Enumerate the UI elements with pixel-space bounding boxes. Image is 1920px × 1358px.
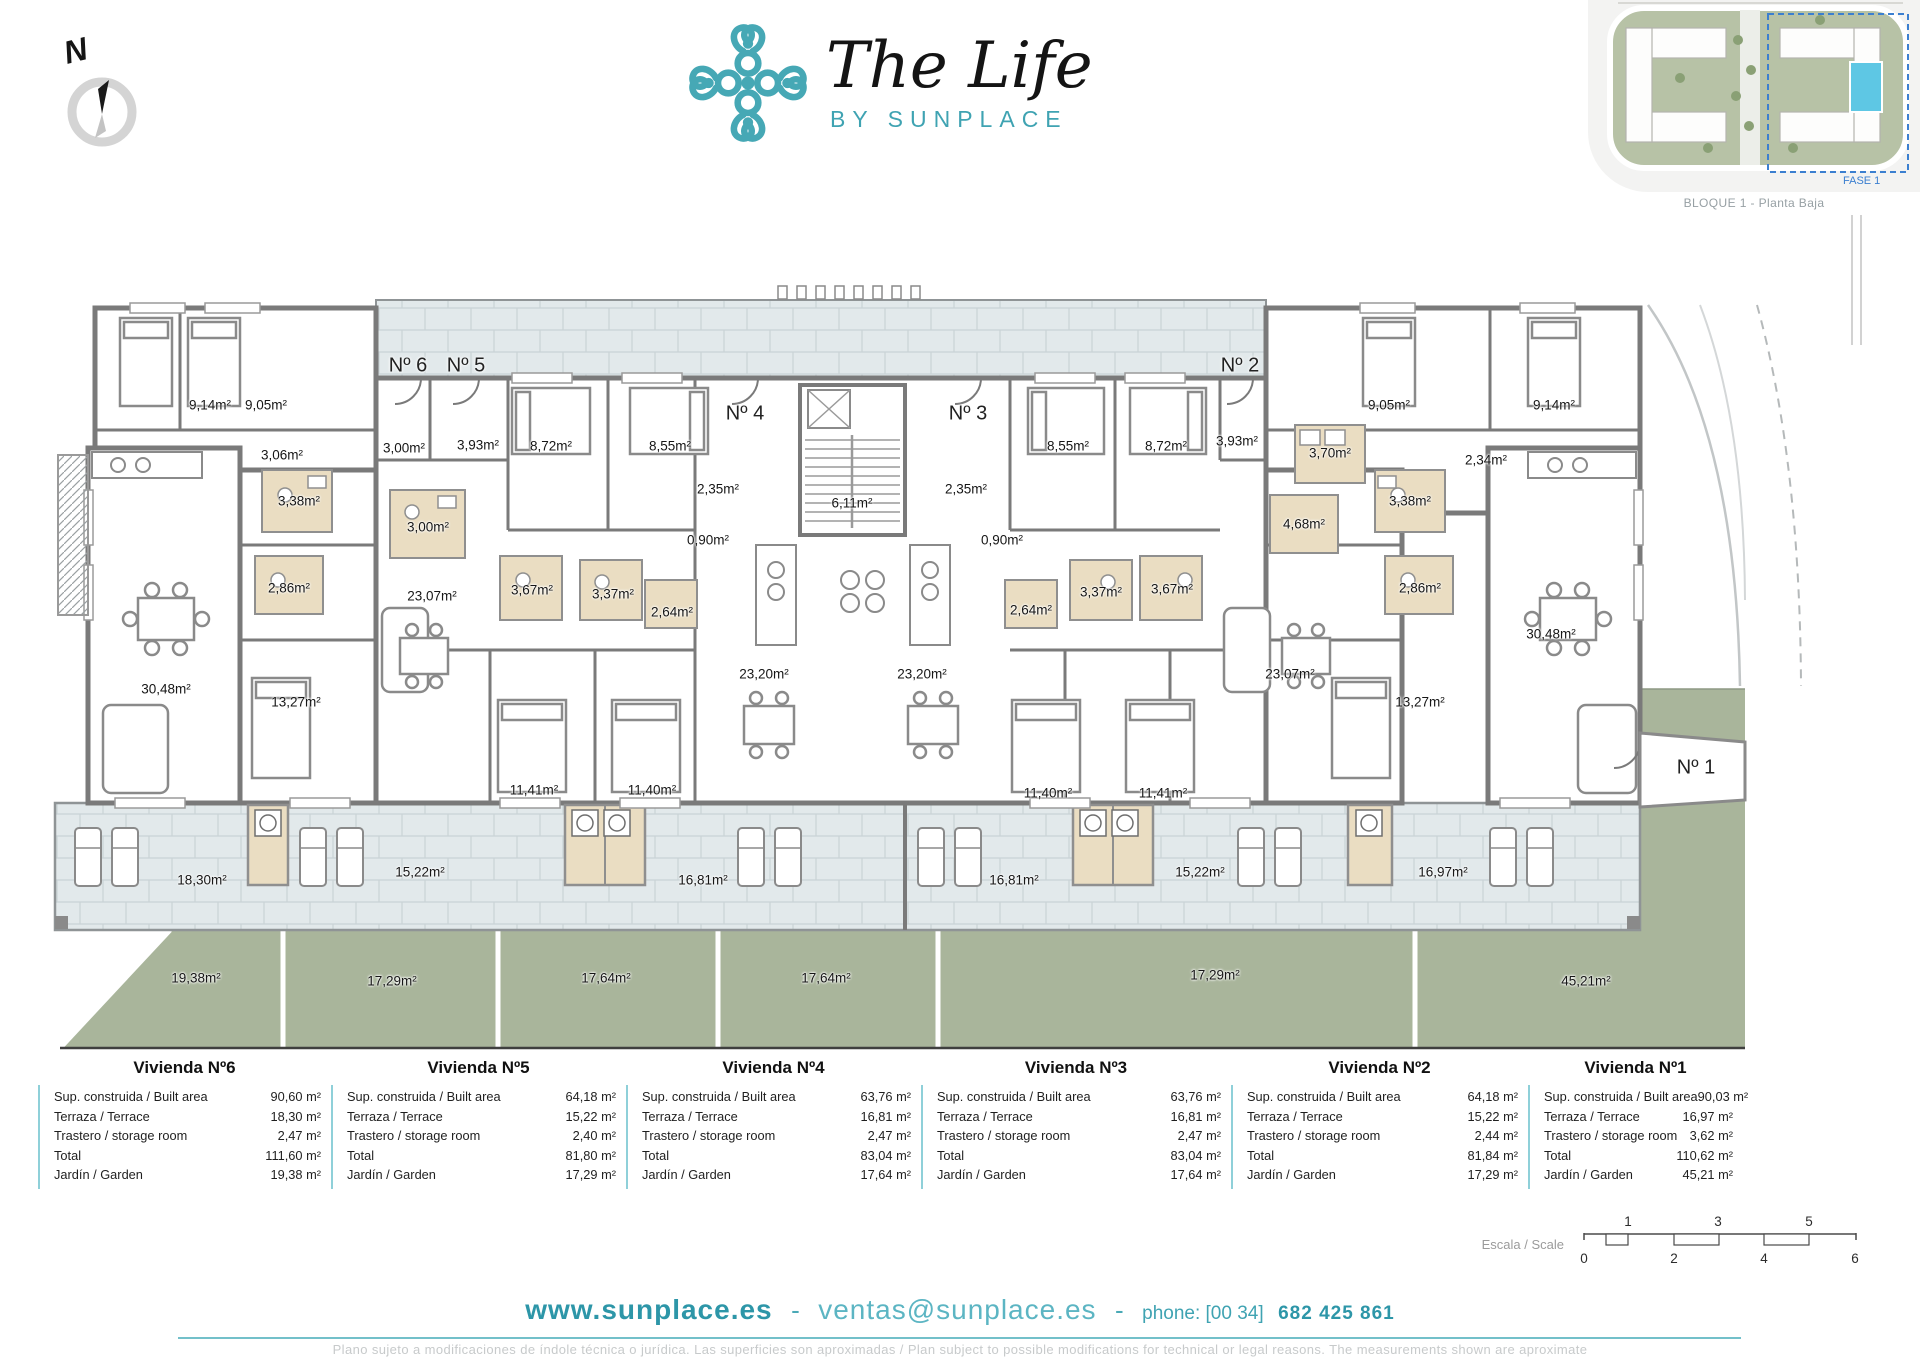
- table-row: Trastero / storage room 2,47 m²: [937, 1126, 1221, 1146]
- row-label-terrace: Terraza / Terrace: [347, 1107, 443, 1127]
- scale-tick: 5: [1805, 1214, 1813, 1229]
- table-row: Trastero / storage room 3,62 m²: [1544, 1126, 1733, 1146]
- table-row: Total 110,62 m²: [1544, 1146, 1733, 1166]
- row-label-total: Total: [1247, 1146, 1274, 1166]
- row-value-storage: 3,62 m²: [1690, 1126, 1733, 1146]
- unit-summary-column: Vivienda Nº3 Sup. construida / Built are…: [921, 1058, 1231, 1189]
- scale-tick: 0: [1580, 1251, 1588, 1266]
- unit-title: Vivienda Nº5: [331, 1058, 626, 1078]
- row-value-total: 83,04 m²: [860, 1146, 911, 1166]
- table-row: Jardín / Garden 19,38 m²: [54, 1165, 321, 1185]
- unit-summary-column: Vivienda Nº5 Sup. construida / Built are…: [331, 1058, 626, 1189]
- walkway-strip: [376, 286, 1266, 378]
- row-value-total: 111,60 m²: [265, 1146, 321, 1166]
- row-label-total: Total: [347, 1146, 374, 1166]
- row-value-garden: 17,29 m²: [565, 1165, 616, 1185]
- table-row: Terraza / Terrace 16,81 m²: [642, 1107, 911, 1127]
- table-row: Trastero / storage room 2,47 m²: [642, 1126, 911, 1146]
- row-label-built: Sup. construida / Built area: [54, 1087, 208, 1107]
- table-row: Jardín / Garden 45,21 m²: [1544, 1165, 1733, 1185]
- row-value-terrace: 16,97 m²: [1682, 1107, 1733, 1127]
- table-row: Trastero / storage room 2,44 m²: [1247, 1126, 1518, 1146]
- row-value-total: 81,84 m²: [1467, 1146, 1518, 1166]
- table-row: Total 81,84 m²: [1247, 1146, 1518, 1166]
- row-value-storage: 2,44 m²: [1475, 1126, 1518, 1146]
- row-label-storage: Trastero / storage room: [1544, 1126, 1677, 1146]
- row-value-built: 63,76 m²: [860, 1087, 911, 1107]
- table-row: Total 83,04 m²: [642, 1146, 911, 1166]
- scale-bottom-ticks: 0246: [1583, 1251, 1857, 1265]
- table-row: Terraza / Terrace 16,81 m²: [937, 1107, 1221, 1127]
- row-label-garden: Jardín / Garden: [347, 1165, 436, 1185]
- row-value-total: 81,80 m²: [565, 1146, 616, 1166]
- unit-summary-tables: Vivienda Nº6 Sup. construida / Built are…: [38, 1058, 1743, 1189]
- row-label-garden: Jardín / Garden: [937, 1165, 1026, 1185]
- disclaimer-text: Plano sujeto a modificaciones de índole …: [0, 1342, 1920, 1357]
- scale-tick: 3: [1714, 1214, 1722, 1229]
- row-value-storage: 2,40 m²: [573, 1126, 616, 1146]
- table-row: Trastero / storage room 2,40 m²: [347, 1126, 616, 1146]
- table-row: Sup. construida / Built area 90,60 m²: [54, 1087, 321, 1107]
- website-link[interactable]: www.sunplace.es: [525, 1294, 772, 1325]
- stair-core: [800, 385, 905, 535]
- unit-rows: Sup. construida / Built area 64,18 m² Te…: [331, 1085, 626, 1189]
- row-label-total: Total: [54, 1146, 81, 1166]
- row-label-built: Sup. construida / Built area: [937, 1087, 1091, 1107]
- row-value-storage: 2,47 m²: [868, 1126, 911, 1146]
- unit-title: Vivienda Nº6: [38, 1058, 331, 1078]
- row-value-built: 64,18 m²: [565, 1087, 616, 1107]
- footer-divider: [178, 1337, 1741, 1339]
- table-row: Terraza / Terrace 15,22 m²: [347, 1107, 616, 1127]
- scale-tick: 2: [1670, 1251, 1678, 1266]
- table-row: Terraza / Terrace 18,30 m²: [54, 1107, 321, 1127]
- email-link[interactable]: ventas@sunplace.es: [818, 1294, 1096, 1325]
- unit-title: Vivienda Nº3: [921, 1058, 1231, 1078]
- row-label-storage: Trastero / storage room: [54, 1126, 187, 1146]
- unit-title: Vivienda Nº4: [626, 1058, 921, 1078]
- table-row: Terraza / Terrace 15,22 m²: [1247, 1107, 1518, 1127]
- table-row: Sup. construida / Built area 64,18 m²: [347, 1087, 616, 1107]
- unit-rows: Sup. construida / Built area 90,60 m² Te…: [38, 1085, 331, 1189]
- unit-rows: Sup. construida / Built area 90,03 m² Te…: [1528, 1085, 1743, 1189]
- scale-tick: 6: [1851, 1251, 1859, 1266]
- row-label-garden: Jardín / Garden: [1544, 1165, 1633, 1185]
- table-row: Trastero / storage room 2,47 m²: [54, 1126, 321, 1146]
- row-value-storage: 2,47 m²: [1178, 1126, 1221, 1146]
- row-value-garden: 19,38 m²: [270, 1165, 321, 1185]
- table-row: Jardín / Garden 17,64 m²: [642, 1165, 911, 1185]
- row-value-terrace: 16,81 m²: [1170, 1107, 1221, 1127]
- table-row: Total 81,80 m²: [347, 1146, 616, 1166]
- scale-tick: 1: [1624, 1214, 1632, 1229]
- row-label-built: Sup. construida / Built area: [347, 1087, 501, 1107]
- row-label-built: Sup. construida / Built area: [1544, 1087, 1698, 1107]
- row-value-terrace: 16,81 m²: [860, 1107, 911, 1127]
- unit-rows: Sup. construida / Built area 63,76 m² Te…: [626, 1085, 921, 1189]
- table-row: Sup. construida / Built area 64,18 m²: [1247, 1087, 1518, 1107]
- row-label-garden: Jardín / Garden: [1247, 1165, 1336, 1185]
- row-value-built: 90,60 m²: [270, 1087, 321, 1107]
- table-row: Total 111,60 m²: [54, 1146, 321, 1166]
- balcony-hatch: [58, 455, 88, 615]
- table-row: Jardín / Garden 17,29 m²: [347, 1165, 616, 1185]
- row-label-storage: Trastero / storage room: [1247, 1126, 1380, 1146]
- row-value-terrace: 15,22 m²: [1467, 1107, 1518, 1127]
- scale-bar: [1583, 1233, 1857, 1248]
- terrace-strip: [55, 803, 1640, 930]
- row-label-terrace: Terraza / Terrace: [1544, 1107, 1640, 1127]
- row-value-total: 83,04 m²: [1170, 1146, 1221, 1166]
- row-value-terrace: 18,30 m²: [270, 1107, 321, 1127]
- unit-rows: Sup. construida / Built area 63,76 m² Te…: [921, 1085, 1231, 1189]
- phone-label: phone: [00 34]: [1142, 1303, 1264, 1324]
- row-label-terrace: Terraza / Terrace: [1247, 1107, 1343, 1127]
- row-value-terrace: 15,22 m²: [565, 1107, 616, 1127]
- scale-label: Escala / Scale: [1452, 1237, 1564, 1252]
- row-value-garden: 45,21 m²: [1682, 1165, 1733, 1185]
- row-label-garden: Jardín / Garden: [54, 1165, 143, 1185]
- row-value-garden: 17,64 m²: [1170, 1165, 1221, 1185]
- unit-summary-column: Vivienda Nº6 Sup. construida / Built are…: [38, 1058, 331, 1189]
- unit-summary-column: Vivienda Nº1 Sup. construida / Built are…: [1528, 1058, 1743, 1189]
- row-label-garden: Jardín / Garden: [642, 1165, 731, 1185]
- separator: -: [791, 1295, 800, 1325]
- row-label-storage: Trastero / storage room: [937, 1126, 1070, 1146]
- row-label-terrace: Terraza / Terrace: [54, 1107, 150, 1127]
- row-value-built: 63,76 m²: [1170, 1087, 1221, 1107]
- contact-footer: www.sunplace.es - ventas@sunplace.es - p…: [0, 1294, 1920, 1326]
- unit-summary-column: Vivienda Nº4 Sup. construida / Built are…: [626, 1058, 921, 1189]
- table-row: Sup. construida / Built area 90,03 m²: [1544, 1087, 1733, 1107]
- table-row: Jardín / Garden 17,64 m²: [937, 1165, 1221, 1185]
- scale-tick: 4: [1760, 1251, 1768, 1266]
- unit-rows: Sup. construida / Built area 64,18 m² Te…: [1231, 1085, 1528, 1189]
- unit-title: Vivienda Nº2: [1231, 1058, 1528, 1078]
- separator: -: [1115, 1295, 1124, 1325]
- row-label-total: Total: [642, 1146, 669, 1166]
- table-row: Total 83,04 m²: [937, 1146, 1221, 1166]
- row-value-storage: 2,47 m²: [278, 1126, 321, 1146]
- table-row: Sup. construida / Built area 63,76 m²: [937, 1087, 1221, 1107]
- row-value-garden: 17,64 m²: [860, 1165, 911, 1185]
- table-row: Jardín / Garden 17,29 m²: [1247, 1165, 1518, 1185]
- row-label-built: Sup. construida / Built area: [1247, 1087, 1401, 1107]
- row-label-built: Sup. construida / Built area: [642, 1087, 796, 1107]
- unit-title: Vivienda Nº1: [1528, 1058, 1743, 1078]
- plan-sheet: N T: [0, 0, 1920, 1358]
- row-value-built: 64,18 m²: [1467, 1087, 1518, 1107]
- row-value-built: 90,03 m²: [1698, 1087, 1749, 1107]
- row-value-total: 110,62 m²: [1676, 1146, 1733, 1166]
- row-label-terrace: Terraza / Terrace: [642, 1107, 738, 1127]
- row-label-total: Total: [1544, 1146, 1571, 1166]
- sidewalk-curves: [1648, 215, 1861, 686]
- row-label-total: Total: [937, 1146, 964, 1166]
- row-label-terrace: Terraza / Terrace: [937, 1107, 1033, 1127]
- entrance-wedge: [1640, 733, 1745, 807]
- table-row: Sup. construida / Built area 63,76 m²: [642, 1087, 911, 1107]
- row-label-storage: Trastero / storage room: [347, 1126, 480, 1146]
- unit-summary-column: Vivienda Nº2 Sup. construida / Built are…: [1231, 1058, 1528, 1189]
- scale-top-ticks: 135: [1583, 1214, 1857, 1228]
- table-row: Terraza / Terrace 16,97 m²: [1544, 1107, 1733, 1127]
- row-label-storage: Trastero / storage room: [642, 1126, 775, 1146]
- phone-number[interactable]: 682 425 861: [1278, 1303, 1395, 1324]
- row-value-garden: 17,29 m²: [1467, 1165, 1518, 1185]
